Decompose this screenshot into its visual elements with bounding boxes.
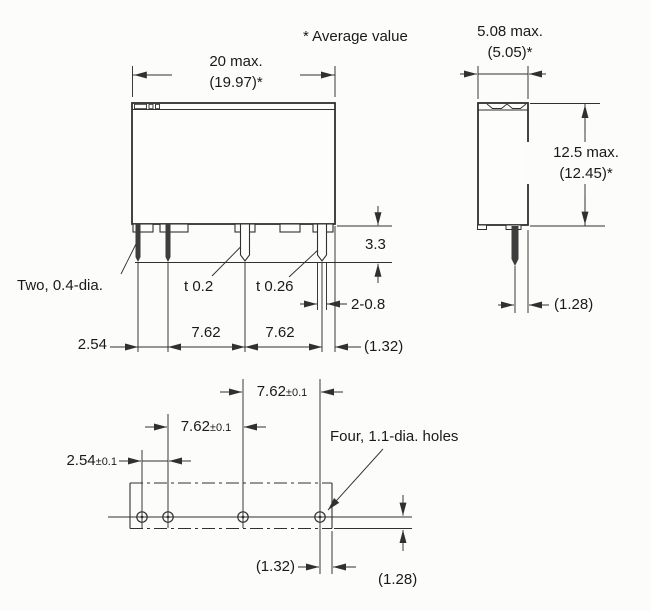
holes-label: Four, 1.1-dia. holes [330, 428, 458, 446]
hole-edge-gap-y-dimension: (1.28) [378, 571, 417, 589]
edge-gap-dimension: (1.32) [364, 338, 403, 356]
mounting-outline [130, 483, 332, 529]
side-depth-avg: (5.05)* [452, 42, 568, 63]
pitch-small-dimension: 2.54 [47, 336, 107, 354]
terminal-pin-side [512, 226, 519, 266]
side-depth-max: 5.08 max. [452, 21, 568, 42]
terminal-tabs [133, 224, 333, 232]
terminal-width-dimension: 2-0.8 [351, 296, 385, 314]
terminal-thickness-right-label: t 0.26 [256, 278, 294, 296]
relay-dimensional-drawing: * Average value 20 max. (19.97)* 5.08 ma… [0, 0, 650, 611]
terminal-pin-3 [241, 224, 250, 261]
hole-pitch-top-tolerance: ±0.1 [286, 387, 307, 399]
hole-pitch-small-value: 2.54 [66, 452, 95, 469]
pitch-right-dimension: 7.62 [250, 324, 310, 342]
average-value-note: * Average value [303, 28, 408, 46]
terminal-pin-4 [318, 224, 327, 261]
side-height-max: 12.5 max. [526, 142, 646, 163]
terminal-length-dimension: 3.3 [365, 236, 386, 254]
side-depth-dimension: 5.08 max. (5.05)* [452, 21, 568, 63]
front-width-dimension: 20 max. (19.97)* [172, 51, 300, 93]
front-width-max: 20 max. [172, 51, 300, 72]
hole-pitch-top-value: 7.62 [257, 383, 286, 400]
side-view-linework [460, 66, 605, 313]
side-height-avg: (12.45)* [526, 163, 646, 184]
pitch-mid-dimension: 7.62 [176, 324, 236, 342]
hole-extension-lines [142, 379, 412, 574]
bottom-view-linework [108, 379, 412, 574]
relay-body-front [132, 103, 335, 224]
hole-pitch-mid-tolerance: ±0.1 [210, 422, 231, 434]
side-height-dimension: 12.5 max. (12.45)* [526, 142, 646, 184]
front-leader-lines [121, 244, 318, 277]
hole-edge-gap-x-dimension: (1.32) [240, 558, 295, 576]
relay-body-side [478, 103, 528, 225]
hole-pitch-small-dimension: 2.54±0.1 [42, 452, 117, 471]
terminal-diameter-label: Two, 0.4-dia. [17, 277, 103, 295]
front-view-linework [110, 66, 392, 352]
holes-leader-line [328, 449, 383, 510]
side-terminal-gap-dimension: (1.28) [554, 296, 593, 314]
hole-edge-dim-lines [298, 495, 403, 567]
terminal-pin-2 [166, 224, 171, 262]
hole-pitch-mid-value: 7.62 [181, 418, 210, 435]
front-width-avg: (19.97)* [172, 72, 300, 93]
drawing-linework [0, 0, 650, 611]
terminal-thickness-mid-label: t 0.2 [184, 278, 213, 296]
terminal-pin-1 [136, 224, 141, 262]
hole-pitch-top-dimension: 7.62±0.1 [245, 383, 319, 402]
hole-pitch-mid-dimension: 7.62±0.1 [170, 418, 242, 437]
hole-pitch-small-tolerance: ±0.1 [96, 456, 117, 468]
